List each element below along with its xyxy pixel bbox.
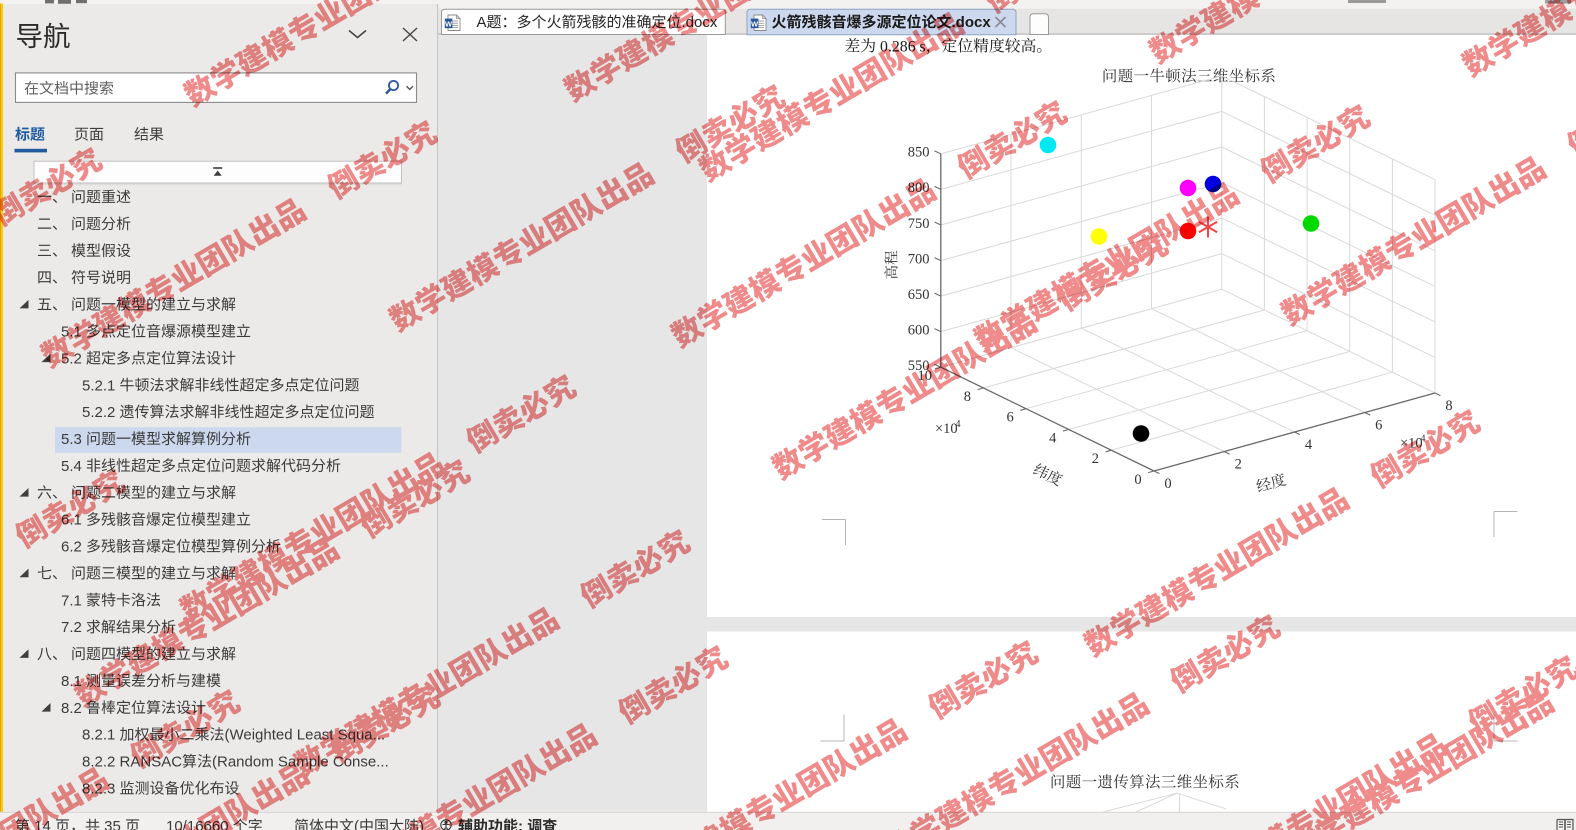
svg-text:5.3: 5.3 [61,431,86,448]
svg-text:W: W [751,19,759,28]
svg-text:5.2.1: 5.2.1 [82,377,120,394]
svg-text:4: 4 [1421,434,1426,445]
svg-text:8: 8 [1445,398,1452,414]
svg-text:6: 6 [1006,410,1013,426]
svg-text:0: 0 [1164,476,1171,492]
svg-text:7.1: 7.1 [61,592,86,609]
svg-text:2: 2 [1092,451,1099,467]
svg-text:5.4: 5.4 [61,458,86,475]
svg-text:5.2.2: 5.2.2 [82,404,120,421]
svg-text:7.2: 7.2 [61,619,86,636]
svg-text:35: 35 [100,818,125,830]
svg-text:×10: ×10 [935,421,958,437]
svg-text:700: 700 [908,251,930,267]
svg-text:8: 8 [964,389,971,405]
svg-text:0: 0 [1134,472,1141,488]
svg-text:750: 750 [908,216,930,232]
svg-text:4: 4 [1305,437,1313,453]
svg-text:600: 600 [908,322,930,338]
svg-text:650: 650 [908,287,930,303]
svg-text:(: ( [354,818,359,830]
svg-text:6.2: 6.2 [61,539,86,556]
svg-text:6: 6 [1375,418,1382,434]
svg-text:4: 4 [956,419,961,430]
svg-text:4: 4 [1049,431,1057,447]
svg-text:2: 2 [1235,457,1242,473]
svg-text::: : [518,818,527,830]
svg-text:850: 850 [908,145,930,161]
svg-text:8.2.1: 8.2.1 [82,727,120,744]
svg-text:W: W [445,19,453,28]
svg-text:A: A [477,14,487,31]
